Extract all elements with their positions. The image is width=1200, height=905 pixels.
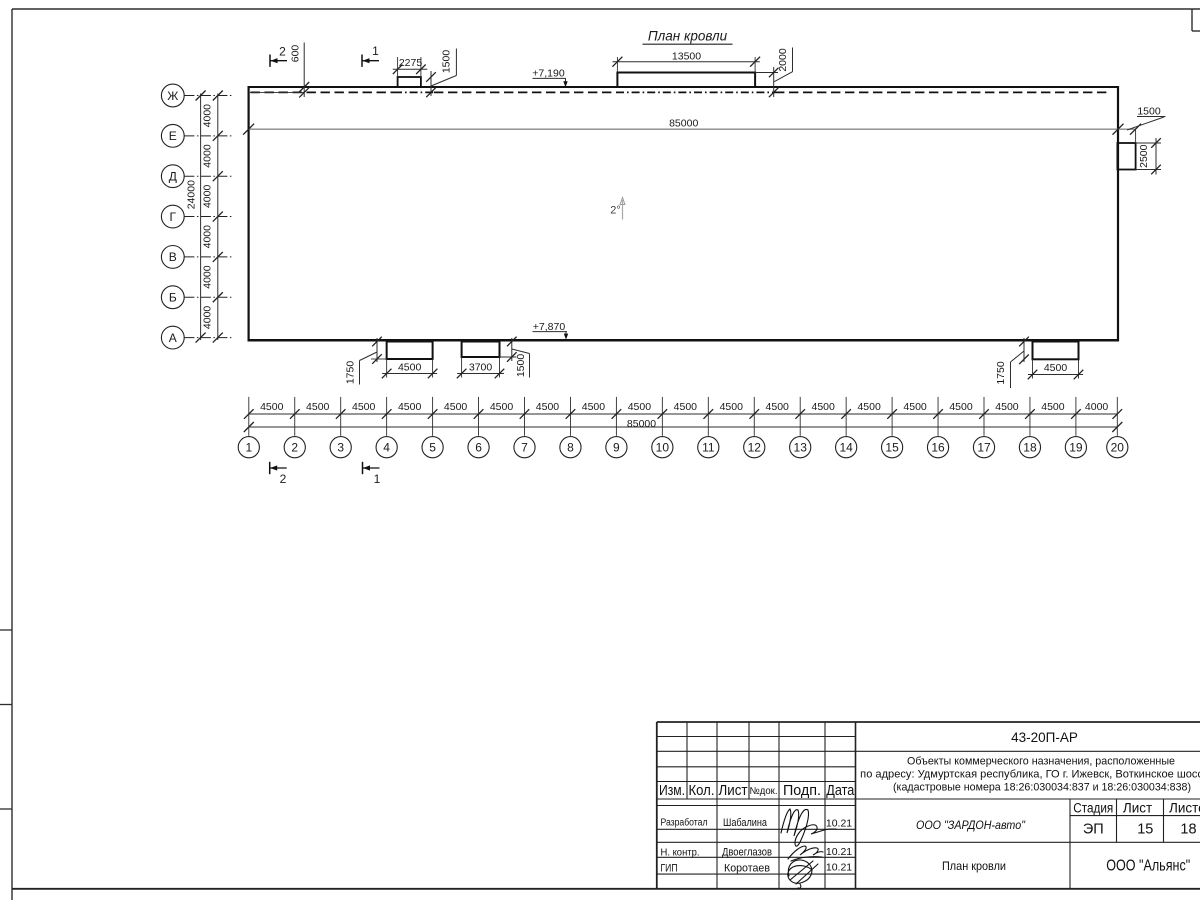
svg-text:Изм.: Изм. — [659, 783, 685, 799]
svg-text:4000: 4000 — [202, 104, 214, 128]
svg-text:4500: 4500 — [903, 401, 927, 413]
svg-text:2000: 2000 — [777, 48, 789, 72]
svg-text:ООО "Альянс": ООО "Альянс" — [1106, 858, 1190, 875]
svg-text:1500: 1500 — [441, 50, 453, 74]
svg-text:ГИП: ГИП — [661, 862, 678, 874]
svg-text:Подп.: Подп. — [783, 783, 821, 799]
svg-text:9: 9 — [613, 441, 620, 455]
svg-text:Дата: Дата — [826, 783, 855, 799]
svg-text:1: 1 — [374, 472, 381, 486]
svg-text:4500: 4500 — [766, 401, 790, 413]
svg-text:(кадастровые номера 18:26:0300: (кадастровые номера 18:26:030034:837 и 1… — [893, 782, 1191, 794]
svg-text:4500: 4500 — [444, 401, 468, 413]
svg-text:3700: 3700 — [469, 361, 493, 373]
svg-text:Б: Б — [169, 291, 177, 305]
svg-text:4000: 4000 — [202, 225, 214, 249]
svg-text:4000: 4000 — [202, 306, 214, 330]
svg-text:14: 14 — [839, 441, 853, 455]
svg-text:4000: 4000 — [202, 265, 214, 289]
svg-text:Разработал: Разработал — [661, 817, 708, 829]
svg-text:Коротаев: Коротаев — [724, 863, 770, 875]
svg-text:1750: 1750 — [995, 361, 1007, 385]
svg-text:4500: 4500 — [306, 401, 330, 413]
svg-text:8: 8 — [567, 441, 574, 455]
svg-text:3: 3 — [337, 441, 344, 455]
svg-text:600: 600 — [289, 45, 301, 63]
svg-text:Ж: Ж — [167, 89, 178, 103]
svg-text:13500: 13500 — [672, 51, 701, 63]
svg-text:18: 18 — [1180, 822, 1196, 838]
svg-text:19: 19 — [1069, 441, 1083, 455]
svg-text:№док.: №док. — [750, 786, 778, 797]
svg-text:1500: 1500 — [1137, 106, 1161, 118]
svg-text:4500: 4500 — [720, 401, 744, 413]
svg-text:Кол.: Кол. — [689, 783, 715, 799]
svg-text:6: 6 — [475, 441, 482, 455]
svg-text:План кровли: План кровли — [942, 859, 1006, 873]
svg-text:4500: 4500 — [857, 401, 881, 413]
svg-text:4000: 4000 — [202, 185, 214, 209]
svg-text:4500: 4500 — [949, 401, 973, 413]
svg-text:Стадия: Стадия — [1073, 800, 1113, 815]
svg-text:План кровли: План кровли — [648, 29, 728, 44]
svg-text:4500: 4500 — [398, 361, 422, 373]
svg-text:А: А — [169, 331, 177, 345]
svg-text:11: 11 — [702, 441, 715, 455]
svg-text:20: 20 — [1111, 441, 1125, 455]
svg-text:Д: Д — [169, 170, 177, 184]
svg-text:15: 15 — [885, 441, 899, 455]
svg-text:Объекты коммерческого назначен: Объекты коммерческого назначения, распол… — [907, 755, 1175, 767]
svg-text:10.21: 10.21 — [826, 818, 852, 830]
svg-text:+7,190: +7,190 — [532, 68, 565, 80]
svg-text:2: 2 — [280, 472, 287, 486]
svg-text:10: 10 — [656, 441, 670, 455]
svg-text:24000: 24000 — [186, 180, 198, 209]
svg-text:Г: Г — [170, 210, 177, 224]
svg-text:2: 2 — [291, 441, 298, 455]
svg-text:13: 13 — [794, 441, 808, 455]
svg-text:5: 5 — [429, 441, 436, 455]
svg-text:4500: 4500 — [674, 401, 698, 413]
svg-text:1: 1 — [372, 44, 379, 58]
svg-text:4500: 4500 — [1041, 401, 1065, 413]
svg-text:Лист: Лист — [719, 783, 748, 799]
svg-text:1750: 1750 — [344, 361, 356, 385]
svg-text:4500: 4500 — [352, 401, 376, 413]
svg-text:12: 12 — [748, 441, 762, 455]
svg-text:Е: Е — [169, 129, 177, 143]
svg-text:10.21: 10.21 — [826, 846, 852, 858]
svg-text:Двоеглазов: Двоеглазов — [722, 846, 772, 858]
svg-text:Листов: Листов — [1169, 800, 1200, 815]
svg-text:Шабалина: Шабалина — [723, 817, 768, 829]
svg-text:15: 15 — [1137, 822, 1153, 838]
svg-text:4500: 4500 — [490, 401, 514, 413]
svg-text:4500: 4500 — [995, 401, 1019, 413]
svg-text:4500: 4500 — [536, 401, 560, 413]
svg-text:4500: 4500 — [582, 401, 606, 413]
svg-text:43-20П-АР: 43-20П-АР — [1011, 730, 1078, 745]
svg-text:18: 18 — [1023, 441, 1037, 455]
svg-text:В: В — [169, 250, 177, 264]
svg-text:16: 16 — [931, 441, 945, 455]
svg-text:1: 1 — [245, 441, 252, 455]
svg-text:2275: 2275 — [399, 57, 423, 69]
svg-text:Н. контр.: Н. контр. — [661, 847, 700, 858]
svg-text:4000: 4000 — [202, 144, 214, 168]
svg-text:ООО "ЗАРДОН-авто": ООО "ЗАРДОН-авто" — [916, 818, 1026, 832]
svg-text:ЭП: ЭП — [1083, 822, 1104, 838]
svg-text:по адресу: Удмуртская республи: по адресу: Удмуртская республика, ГО г. … — [860, 769, 1200, 781]
svg-text:2°: 2° — [610, 205, 621, 217]
svg-text:Лист: Лист — [1123, 800, 1152, 815]
svg-text:17: 17 — [977, 441, 991, 455]
svg-text:85000: 85000 — [627, 418, 656, 430]
svg-text:4500: 4500 — [398, 401, 422, 413]
svg-text:4000: 4000 — [1085, 401, 1109, 413]
svg-text:4: 4 — [383, 441, 390, 455]
svg-text:2: 2 — [279, 45, 286, 59]
svg-text:4500: 4500 — [628, 401, 652, 413]
svg-text:10.21: 10.21 — [826, 862, 852, 874]
svg-text:1500: 1500 — [515, 354, 527, 378]
svg-text:4500: 4500 — [1044, 362, 1068, 374]
svg-text:7: 7 — [521, 441, 528, 455]
svg-text:4500: 4500 — [260, 401, 284, 413]
svg-text:2500: 2500 — [1138, 144, 1150, 168]
svg-text:85000: 85000 — [669, 118, 698, 130]
svg-text:4500: 4500 — [811, 401, 835, 413]
